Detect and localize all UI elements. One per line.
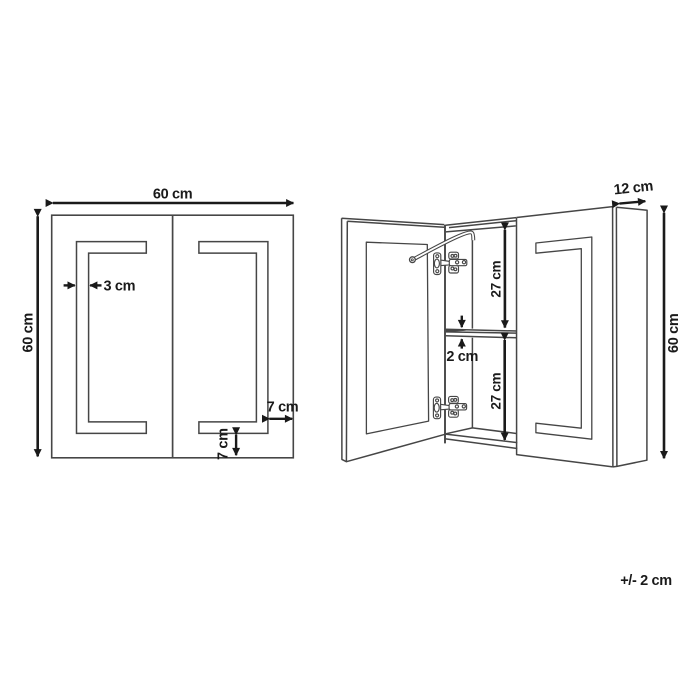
svg-text:7 cm: 7 cm [267, 400, 299, 416]
svg-text:27 cm: 27 cm [488, 373, 503, 410]
svg-text:12 cm: 12 cm [613, 178, 654, 198]
svg-text:7 cm: 7 cm [215, 428, 231, 460]
svg-text:2 cm: 2 cm [446, 349, 478, 365]
svg-text:3 cm: 3 cm [104, 278, 136, 294]
svg-text:60 cm: 60 cm [20, 313, 36, 352]
svg-text:60 cm: 60 cm [666, 314, 682, 353]
svg-text:+/- 2 cm: +/- 2 cm [620, 573, 672, 589]
svg-text:27 cm: 27 cm [488, 261, 503, 298]
svg-text:60 cm: 60 cm [153, 186, 192, 202]
